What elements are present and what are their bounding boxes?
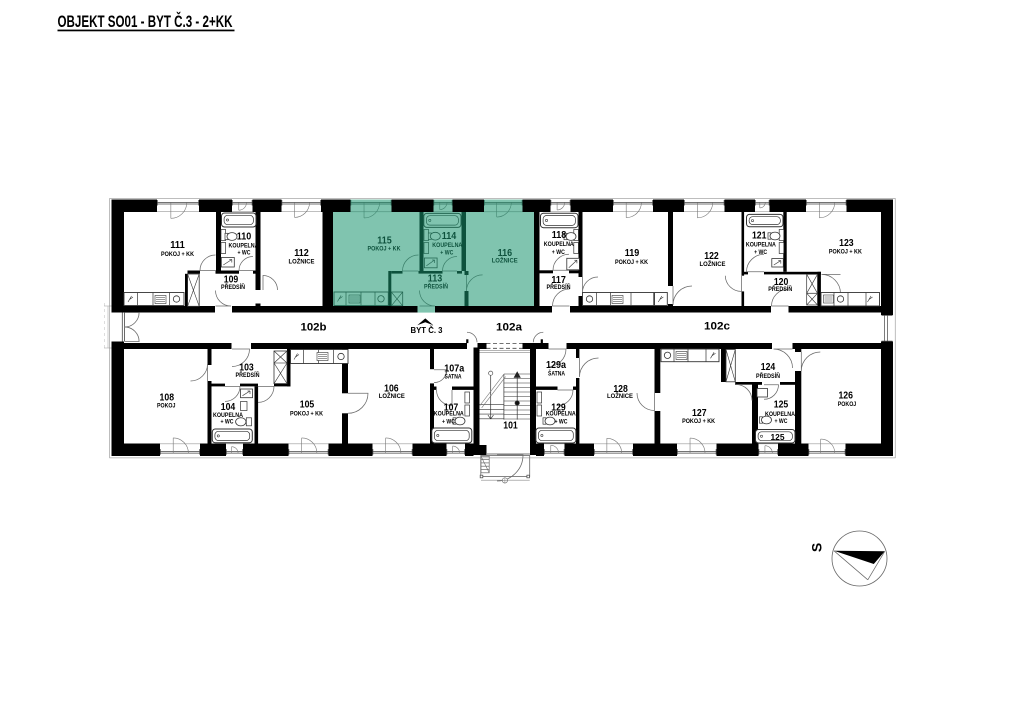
svg-text:PŘEDSÍŇ: PŘEDSÍŇ <box>547 282 571 291</box>
svg-text:LOŽNICE: LOŽNICE <box>289 257 316 266</box>
svg-text:LOŽNICE: LOŽNICE <box>607 391 634 400</box>
svg-text:112: 112 <box>294 247 309 259</box>
svg-text:101: 101 <box>503 420 518 432</box>
svg-text:KOUPELNA: KOUPELNA <box>746 241 776 248</box>
svg-text:129a: 129a <box>546 359 566 371</box>
svg-text:+ WC: + WC <box>221 418 234 425</box>
svg-text:102b: 102b <box>301 322 327 334</box>
svg-text:+ WC: + WC <box>775 418 788 425</box>
svg-text:KOUPELNA: KOUPELNA <box>546 411 576 418</box>
svg-text:POKOJ + KK: POKOJ + KK <box>829 249 862 256</box>
svg-text:+ WC: + WC <box>238 250 251 257</box>
svg-text:110: 110 <box>237 231 252 243</box>
svg-text:+ WC: + WC <box>442 418 455 425</box>
svg-text:121: 121 <box>752 229 767 241</box>
svg-text:POKOJ + KK: POKOJ + KK <box>290 411 323 418</box>
svg-text:BYT Č. 3: BYT Č. 3 <box>411 326 444 335</box>
svg-text:102a: 102a <box>496 322 523 334</box>
svg-text:POKOJ: POKOJ <box>157 402 176 409</box>
svg-text:105: 105 <box>300 399 315 411</box>
svg-text:124: 124 <box>761 361 776 373</box>
svg-text:125: 125 <box>771 433 786 442</box>
svg-text:+ WC: + WC <box>555 418 568 425</box>
svg-text:118: 118 <box>552 229 567 241</box>
svg-text:KOUPELNA: KOUPELNA <box>229 243 259 250</box>
svg-text:111: 111 <box>170 239 185 251</box>
svg-text:PŘEDSÍŇ: PŘEDSÍŇ <box>768 284 792 293</box>
svg-text:ŠATNA: ŠATNA <box>548 369 565 378</box>
svg-text:123: 123 <box>839 237 854 249</box>
svg-text:PŘEDSÍŇ: PŘEDSÍŇ <box>756 371 780 380</box>
svg-text:S: S <box>809 543 825 552</box>
svg-text:119: 119 <box>625 247 640 259</box>
svg-text:LOŽNICE: LOŽNICE <box>700 259 727 268</box>
svg-text:ŠATNA: ŠATNA <box>445 372 462 381</box>
svg-text:KOUPELNA: KOUPELNA <box>544 241 574 248</box>
svg-text:POKOJ + KK: POKOJ + KK <box>615 259 648 266</box>
svg-text:POKOJ + KK: POKOJ + KK <box>682 418 715 425</box>
svg-text:102c: 102c <box>704 321 730 333</box>
svg-text:PŘEDSÍŇ: PŘEDSÍŇ <box>236 370 260 379</box>
svg-text:POKOJ + KK: POKOJ + KK <box>161 251 194 258</box>
svg-text:126: 126 <box>838 390 853 402</box>
svg-text:POKOJ: POKOJ <box>838 401 857 408</box>
svg-text:+ WC: + WC <box>754 249 767 256</box>
svg-text:KOUPELNA: KOUPELNA <box>434 411 464 418</box>
svg-text:KOUPELNA: KOUPELNA <box>765 411 795 418</box>
svg-text:PŘEDSÍŇ: PŘEDSÍŇ <box>221 282 245 291</box>
svg-text:OBJEKT SO01 - BYT Č.3 - 2+KK: OBJEKT SO01 - BYT Č.3 - 2+KK <box>58 12 233 31</box>
svg-text:+ WC: + WC <box>552 249 565 256</box>
svg-text:125: 125 <box>774 399 789 411</box>
svg-text:LOŽNICE: LOŽNICE <box>379 391 406 400</box>
